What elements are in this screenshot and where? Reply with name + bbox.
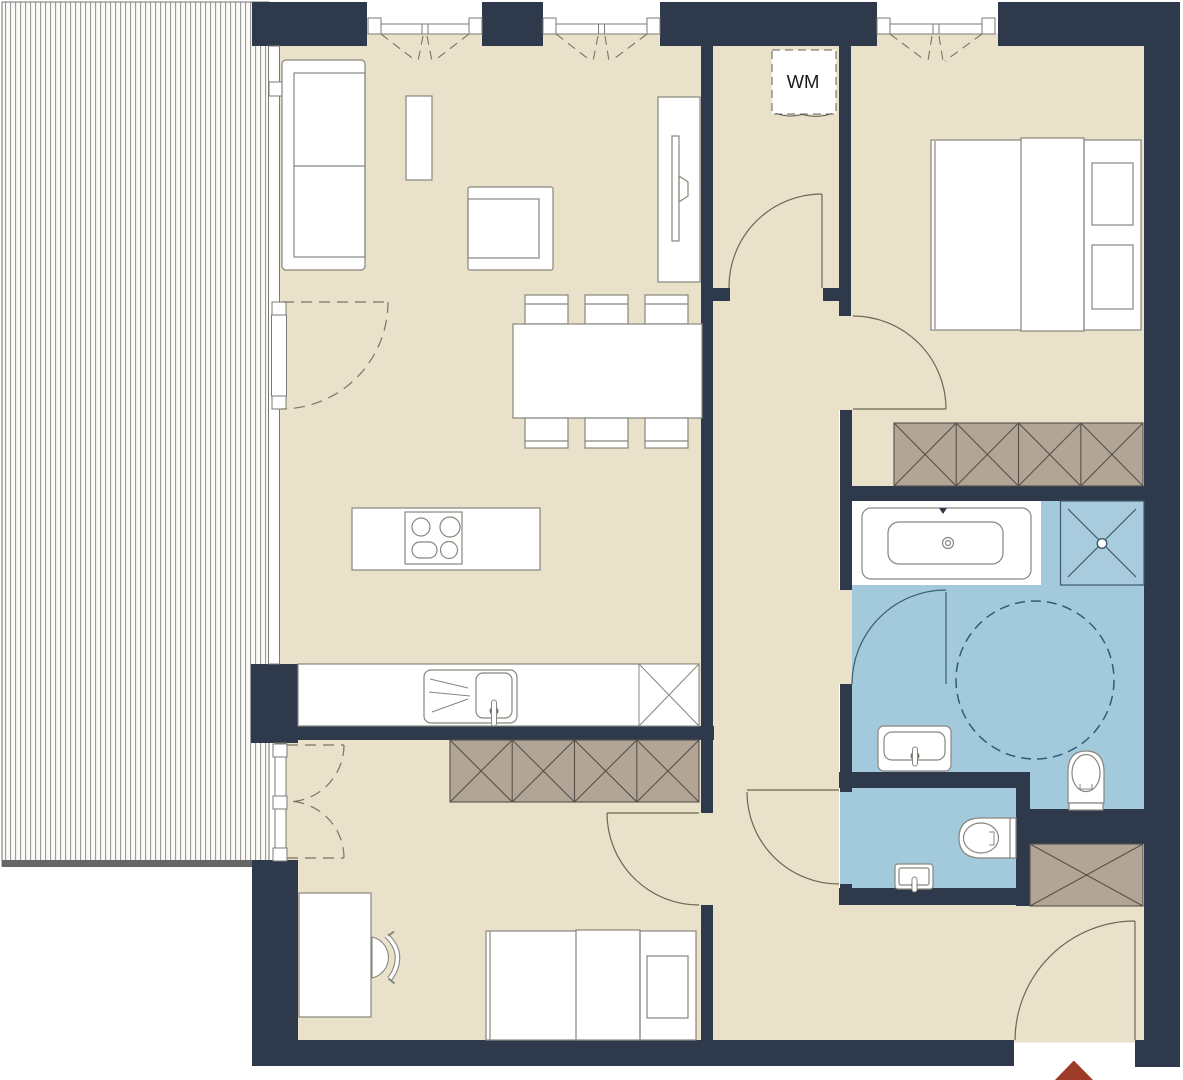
svg-text:WM: WM — [787, 71, 820, 92]
